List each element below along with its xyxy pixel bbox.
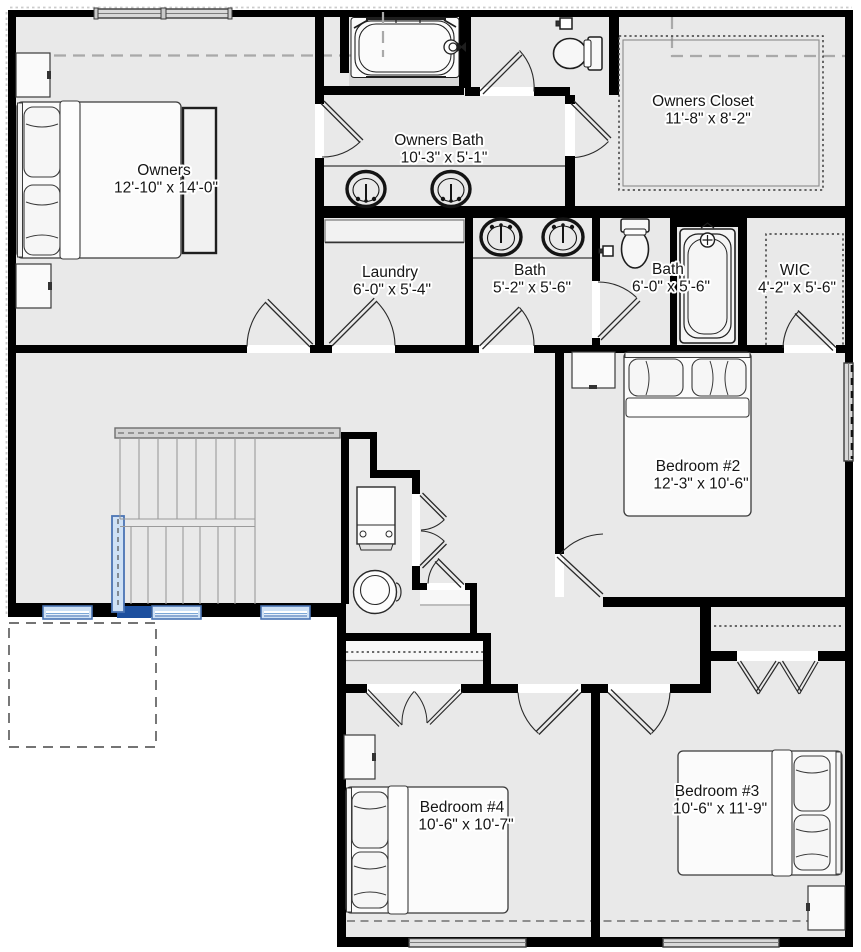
svg-text:Owners Bath: Owners Bath bbox=[394, 132, 484, 149]
svg-text:5'-2" x 5'-6": 5'-2" x 5'-6" bbox=[493, 280, 571, 297]
svg-text:4'-2" x 5'-6": 4'-2" x 5'-6" bbox=[758, 280, 836, 297]
svg-text:12'-3" x 10'-6": 12'-3" x 10'-6" bbox=[653, 476, 748, 493]
svg-text:11'-8" x 8'-2": 11'-8" x 8'-2" bbox=[665, 111, 751, 128]
svg-text:WIC: WIC bbox=[780, 262, 810, 279]
svg-text:6'-0" x 5'-4": 6'-0" x 5'-4" bbox=[353, 282, 431, 299]
svg-text:6'-0" x 5'-6": 6'-0" x 5'-6" bbox=[632, 279, 710, 296]
svg-text:Bedroom #3: Bedroom #3 bbox=[675, 783, 759, 800]
svg-text:Laundry: Laundry bbox=[362, 264, 418, 281]
svg-text:Bedroom #4: Bedroom #4 bbox=[420, 799, 505, 816]
svg-text:Bedroom #2: Bedroom #2 bbox=[656, 458, 740, 475]
svg-text:Bath: Bath bbox=[514, 262, 546, 279]
svg-text:Owners: Owners bbox=[137, 162, 191, 179]
svg-text:10'-6" x 11'-9": 10'-6" x 11'-9" bbox=[673, 801, 767, 818]
svg-text:12'-10" x 14'-0": 12'-10" x 14'-0" bbox=[114, 180, 218, 197]
svg-text:Owners Closet: Owners Closet bbox=[652, 93, 754, 110]
svg-text:Bath: Bath bbox=[652, 261, 684, 278]
svg-text:10'-3" x 5'-1": 10'-3" x 5'-1" bbox=[401, 150, 488, 167]
svg-text:10'-6" x 10'-7": 10'-6" x 10'-7" bbox=[418, 817, 513, 834]
